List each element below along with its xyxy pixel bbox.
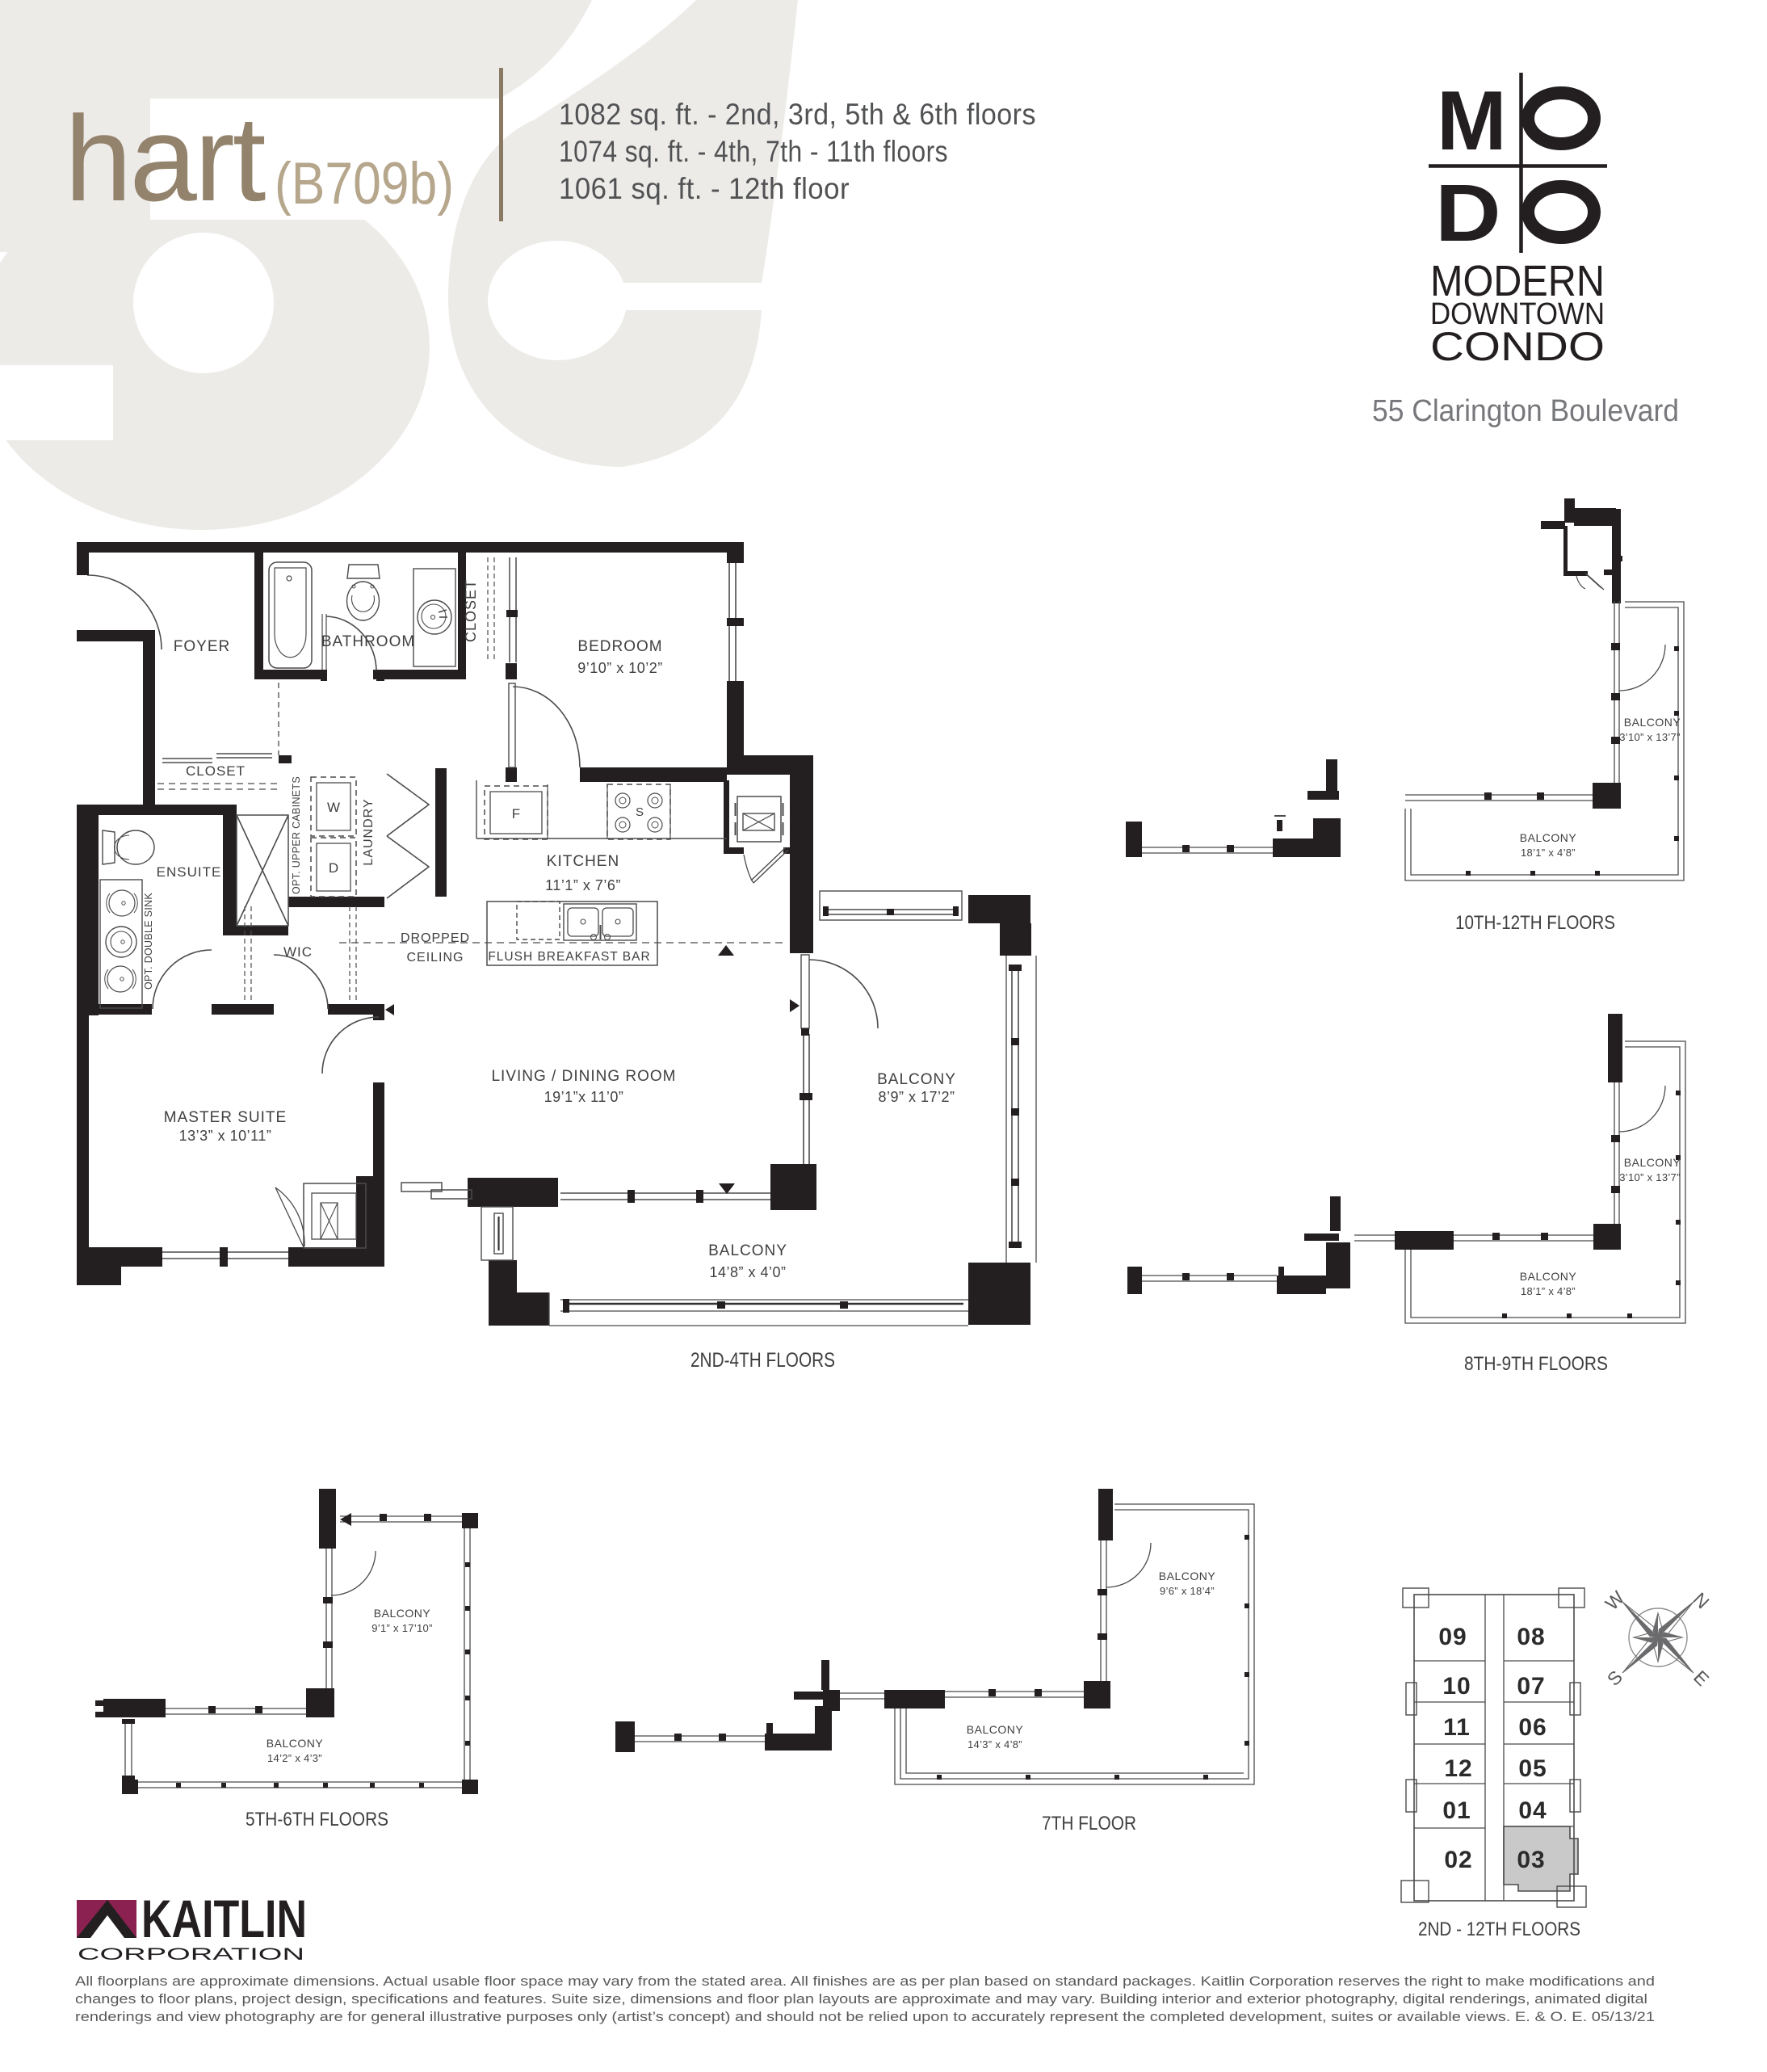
svg-text:BEDROOM: BEDROOM — [577, 638, 662, 655]
svg-text:BALCONY: BALCONY — [1520, 1270, 1577, 1283]
svg-text:14’3” x 4’8”: 14’3” x 4’8” — [967, 1738, 1022, 1750]
svg-text:9’1” x 17’10”: 9’1” x 17’10” — [371, 1622, 432, 1634]
svg-text:9’10” x 10’2”: 9’10” x 10’2” — [577, 660, 663, 676]
svg-text:CLOSET: CLOSET — [186, 763, 246, 779]
svg-text:03: 03 — [1517, 1847, 1545, 1873]
svg-text:11: 11 — [1443, 1714, 1471, 1741]
svg-text:10: 10 — [1442, 1673, 1471, 1700]
svg-text:CEILING: CEILING — [406, 951, 464, 965]
svg-text:2ND-4TH FLOORS: 2ND-4TH FLOORS — [690, 1349, 835, 1372]
svg-text:CORPORATION: CORPORATION — [78, 1945, 304, 1964]
svg-text:FLUSH BREAKFAST BAR: FLUSH BREAKFAST BAR — [488, 950, 650, 964]
svg-text:BALCONY: BALCONY — [1624, 716, 1681, 729]
svg-text:5TH-6TH FLOORS: 5TH-6TH FLOORS — [246, 1809, 388, 1830]
svg-text:3’10” x 13’7”: 3’10” x 13’7” — [1619, 731, 1680, 743]
svg-text:14’2” x 4’3”: 14’2” x 4’3” — [267, 1752, 322, 1764]
svg-text:1061 sq. ft. - 12th floor: 1061 sq. ft. - 12th floor — [559, 172, 850, 205]
svg-text:ENSUITE: ENSUITE — [157, 864, 222, 880]
svg-text:10TH-12TH FLOORS: 10TH-12TH FLOORS — [1455, 912, 1615, 934]
svg-text:BATHROOM: BATHROOM — [321, 633, 415, 650]
svg-text:DROPPED: DROPPED — [401, 931, 470, 945]
svg-text:08: 08 — [1517, 1624, 1545, 1650]
svg-text:BALCONY: BALCONY — [267, 1737, 324, 1750]
svg-text:2ND - 12TH FLOORS: 2ND - 12TH FLOORS — [1418, 1919, 1580, 1940]
svg-text:07: 07 — [1517, 1673, 1545, 1700]
svg-text:BALCONY: BALCONY — [877, 1071, 956, 1088]
svg-text:06: 06 — [1518, 1714, 1547, 1741]
svg-text:S: S — [1603, 1666, 1626, 1690]
svg-text:BALCONY: BALCONY — [1159, 1570, 1216, 1582]
svg-text:14’8” x 4’0”: 14’8” x 4’0” — [709, 1264, 786, 1280]
svg-text:KITCHEN: KITCHEN — [547, 853, 619, 870]
svg-text:13’3” x 10’11”: 13’3” x 10’11” — [179, 1128, 272, 1144]
svg-text:BALCONY: BALCONY — [374, 1607, 431, 1620]
svg-text:1074 sq. ft. - 4th, 7th - 11th: 1074 sq. ft. - 4th, 7th - 11th floors — [559, 135, 948, 168]
svg-text:7TH FLOOR: 7TH FLOOR — [1042, 1813, 1136, 1835]
svg-text:KAITLIN: KAITLIN — [141, 1889, 307, 1948]
svg-text:BALCONY: BALCONY — [1520, 831, 1577, 844]
svg-text:OPT. DOUBLE SINK: OPT. DOUBLE SINK — [143, 893, 154, 990]
svg-text:FOYER: FOYER — [174, 638, 230, 655]
svg-text:W: W — [327, 800, 340, 815]
svg-text:8TH-9TH FLOORS: 8TH-9TH FLOORS — [1464, 1353, 1608, 1375]
svg-text:F: F — [512, 806, 520, 822]
svg-text:LAUNDRY: LAUNDRY — [362, 798, 376, 865]
svg-text:WIC: WIC — [283, 944, 313, 960]
svg-text:18’1” x 4’8”: 18’1” x 4’8” — [1521, 847, 1576, 859]
svg-text:N: N — [1689, 1588, 1714, 1612]
svg-text:9’6” x 18’4”: 9’6” x 18’4” — [1160, 1585, 1215, 1597]
svg-text:CONDO: CONDO — [1430, 324, 1605, 369]
svg-text:OPT. UPPER CABINETS: OPT. UPPER CABINETS — [291, 776, 302, 894]
svg-text:3’10” x 13’7”: 3’10” x 13’7” — [1619, 1171, 1680, 1183]
svg-text:E: E — [1689, 1666, 1713, 1690]
svg-text:MASTER SUITE: MASTER SUITE — [164, 1109, 287, 1126]
svg-text:(B709b): (B709b) — [275, 151, 454, 216]
svg-text:BALCONY: BALCONY — [967, 1723, 1024, 1736]
svg-text:05: 05 — [1518, 1755, 1547, 1782]
svg-text:W: W — [1601, 1587, 1628, 1614]
svg-text:1082 sq. ft. - 2nd, 3rd, 5th &: 1082 sq. ft. - 2nd, 3rd, 5th & 6th floor… — [559, 98, 1036, 131]
svg-text:8’9” x 17’2”: 8’9” x 17’2” — [878, 1089, 955, 1105]
svg-text:CLOSET: CLOSET — [463, 579, 479, 642]
svg-text:LIVING / DINING ROOM: LIVING / DINING ROOM — [491, 1068, 676, 1085]
svg-text:18’1” x 4’8”: 18’1” x 4’8” — [1521, 1285, 1576, 1297]
svg-text:11’1” x 7’6”: 11’1” x 7’6” — [545, 877, 621, 893]
svg-text:BALCONY: BALCONY — [708, 1242, 787, 1259]
svg-text:19’1”x 11’0”: 19’1”x 11’0” — [544, 1089, 624, 1105]
svg-text:renderings and view photograph: renderings and view photography are for … — [75, 2010, 1655, 2024]
svg-text:01: 01 — [1442, 1797, 1471, 1824]
svg-text:changes to floor plans, projec: changes to floor plans, project design, … — [75, 1992, 1647, 2007]
svg-text:M: M — [1437, 74, 1507, 168]
svg-text:D: D — [1435, 167, 1501, 258]
svg-text:D: D — [329, 860, 338, 876]
svg-text:BALCONY: BALCONY — [1624, 1156, 1681, 1169]
svg-text:12: 12 — [1444, 1755, 1472, 1782]
svg-text:55 Clarington Boulevard: 55 Clarington Boulevard — [1372, 394, 1679, 428]
svg-text:S: S — [636, 805, 644, 819]
svg-text:02: 02 — [1444, 1847, 1472, 1873]
svg-text:04: 04 — [1518, 1797, 1547, 1824]
svg-text:09: 09 — [1438, 1624, 1467, 1650]
svg-text:hart: hart — [65, 90, 266, 226]
svg-text:All floorplans are approximate: All floorplans are approximate dimension… — [75, 1974, 1655, 1989]
